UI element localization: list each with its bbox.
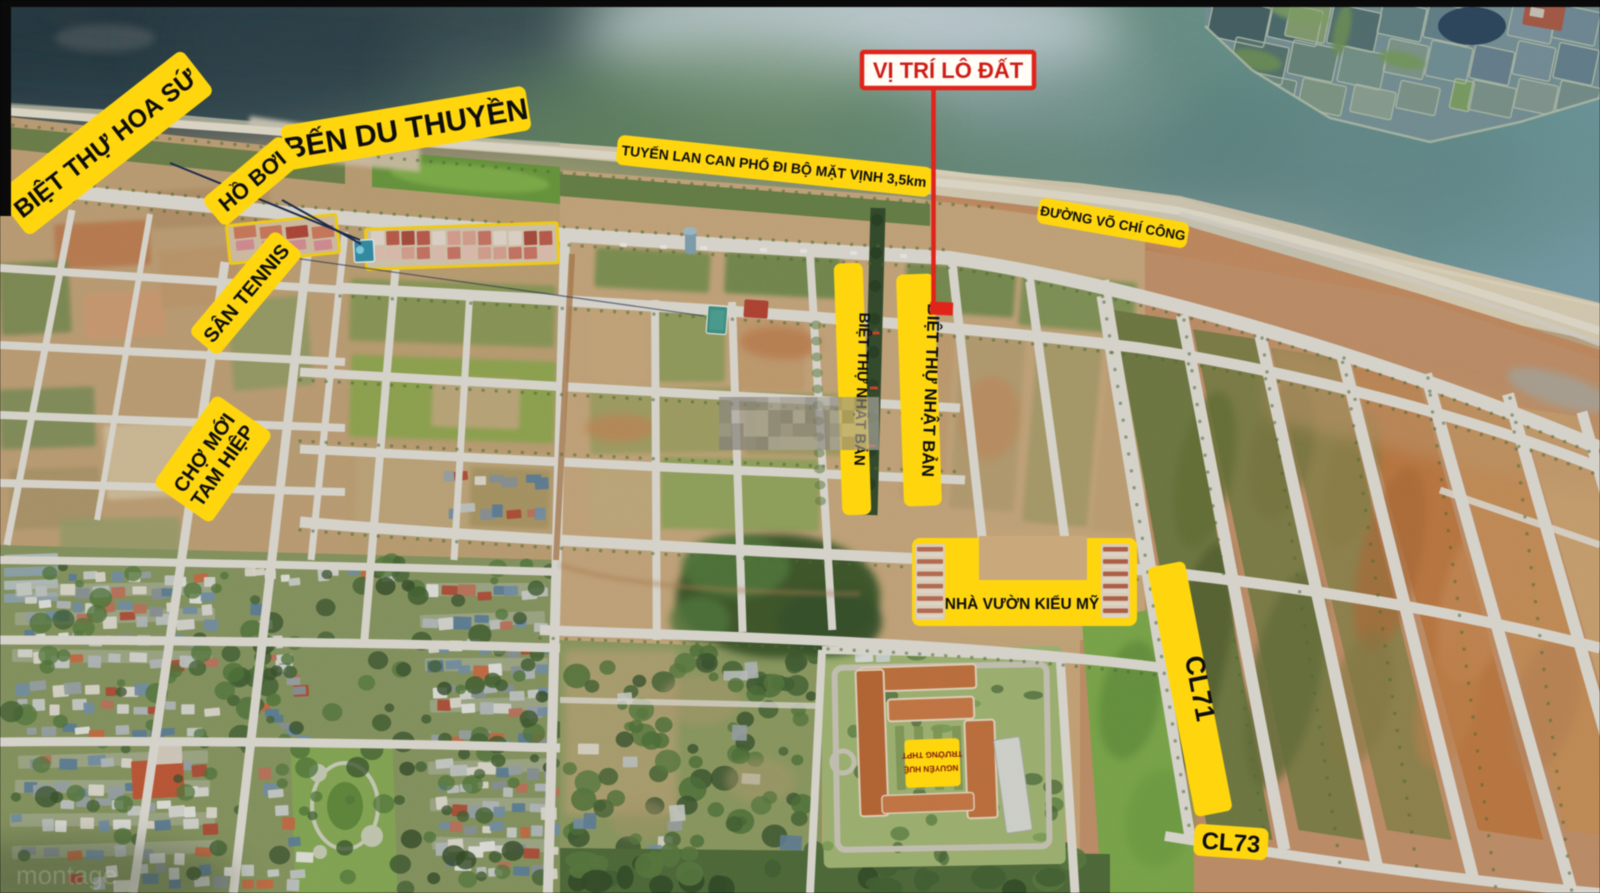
svg-text:NHÀ VƯỜN KIỂU MỸ: NHÀ VƯỜN KIỂU MỸ xyxy=(945,595,1100,613)
svg-text:VỊ TRÍ LÔ ĐẤT: VỊ TRÍ LÔ ĐẤT xyxy=(873,58,1024,83)
svg-text:CL73: CL73 xyxy=(1201,828,1261,859)
